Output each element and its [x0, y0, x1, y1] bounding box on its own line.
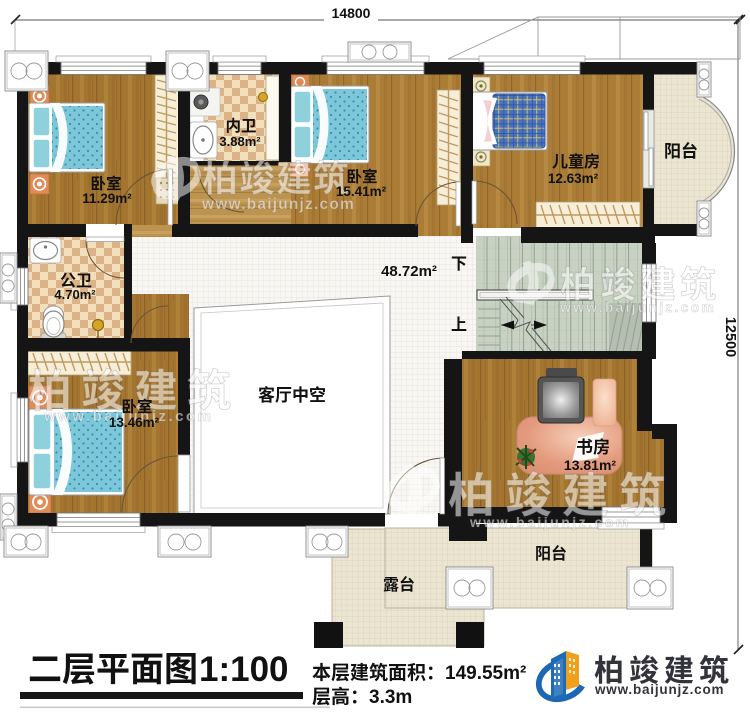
- svg-text:露台: 露台: [383, 571, 415, 595]
- svg-text:柏竣建筑: 柏竣建筑: [202, 150, 350, 202]
- svg-text:www.baijunjz.com: www.baijunjz.com: [559, 299, 716, 315]
- svg-text:上: 上: [451, 311, 467, 335]
- svg-text:下: 下: [451, 250, 467, 274]
- svg-text:1:100: 1:100: [199, 650, 289, 689]
- svg-text:二层平面图: 二层平面图: [28, 642, 198, 691]
- svg-text:48.72m²: 48.72m²: [381, 260, 437, 281]
- svg-text:本层建筑面积：149.55m²: 本层建筑面积：149.55m²: [312, 658, 526, 685]
- svg-text:www.baijunjz.com: www.baijunjz.com: [469, 514, 631, 530]
- svg-text:13.46m²: 13.46m²: [109, 411, 160, 431]
- svg-text:阳台: 阳台: [535, 540, 567, 564]
- svg-text:www.baijunjz.com: www.baijunjz.com: [594, 682, 724, 697]
- svg-text:3.88m²: 3.88m²: [219, 131, 261, 150]
- svg-text:4.70m²: 4.70m²: [54, 284, 96, 303]
- svg-text:客厅中空: 客厅中空: [258, 381, 326, 406]
- svg-text:14800: 14800: [332, 5, 371, 21]
- svg-text:12500: 12500: [722, 317, 738, 357]
- svg-text:11.29m²: 11.29m²: [82, 187, 132, 207]
- svg-text:层高：3.3m: 层高：3.3m: [312, 682, 412, 709]
- svg-text:15.41m²: 15.41m²: [336, 180, 387, 200]
- svg-text:12.63m²: 12.63m²: [548, 167, 599, 187]
- svg-text:www.baijunjz.com: www.baijunjz.com: [201, 196, 355, 213]
- svg-text:阳台: 阳台: [664, 137, 698, 162]
- svg-text:13.81m²: 13.81m²: [564, 455, 616, 475]
